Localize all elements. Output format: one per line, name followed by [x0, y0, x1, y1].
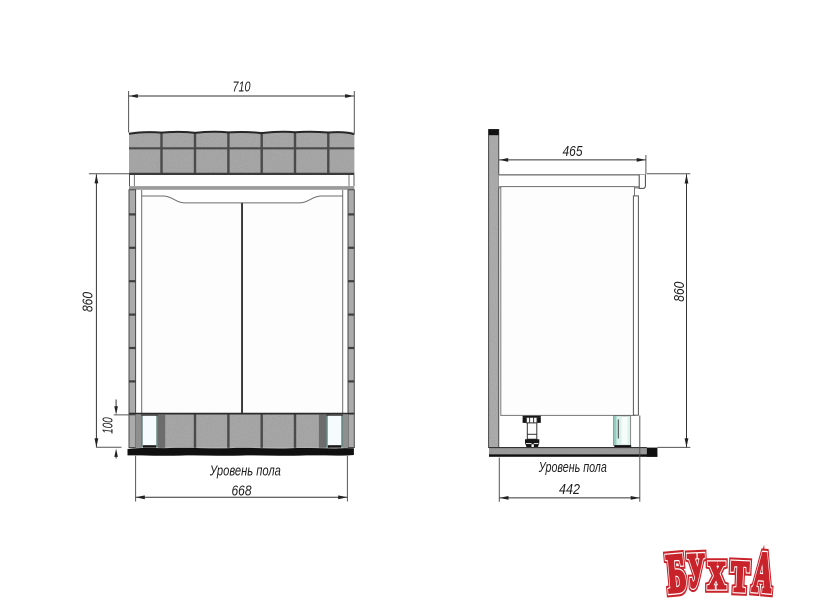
svg-text:860: 860	[672, 282, 688, 302]
svg-text:Уровень пола: Уровень пола	[538, 460, 607, 476]
svg-text:710: 710	[233, 80, 251, 96]
svg-text:442: 442	[559, 482, 580, 498]
svg-text:Уровень пола: Уровень пола	[209, 464, 281, 480]
svg-text:465: 465	[563, 144, 584, 160]
svg-text:668: 668	[232, 483, 252, 499]
svg-text:Х: Х	[708, 554, 726, 596]
svg-text:100: 100	[101, 417, 117, 434]
svg-text:У: У	[686, 544, 706, 598]
svg-text:860: 860	[81, 292, 97, 312]
svg-text:Т: Т	[730, 552, 750, 601]
